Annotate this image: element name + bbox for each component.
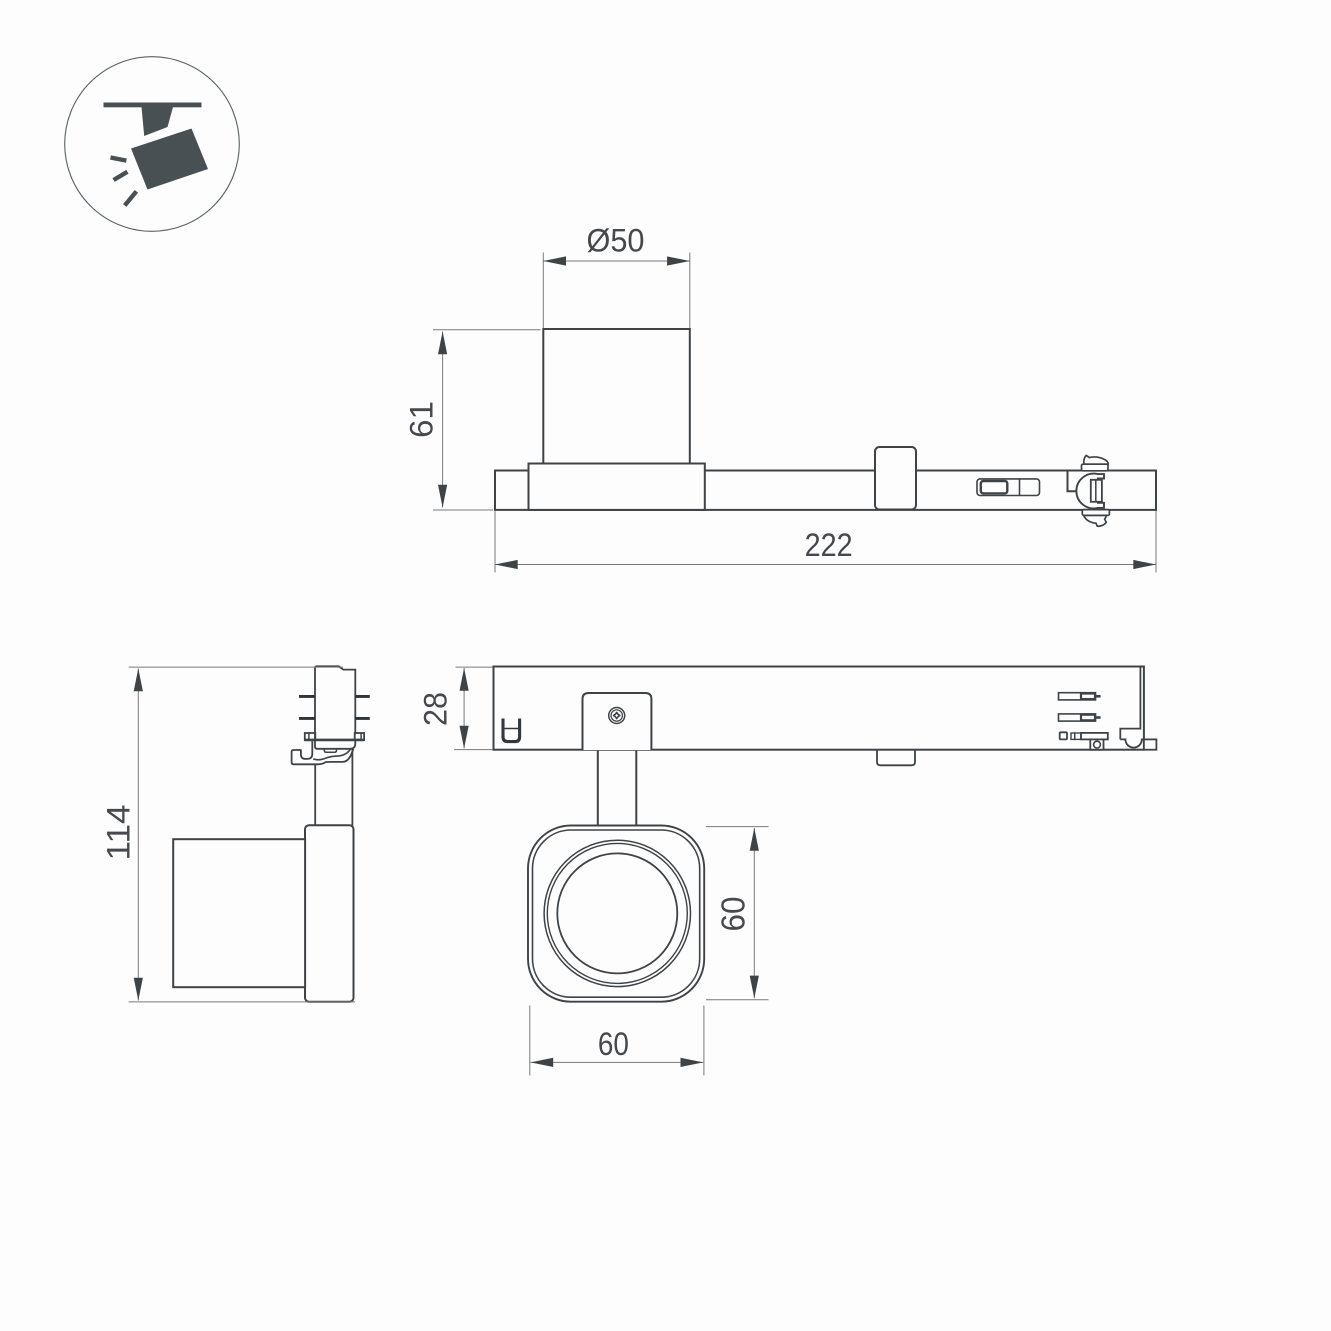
svg-text:222: 222 bbox=[805, 527, 853, 563]
svg-text:Ø50: Ø50 bbox=[587, 222, 645, 258]
svg-text:114: 114 bbox=[100, 805, 136, 861]
svg-text:28: 28 bbox=[418, 692, 454, 726]
svg-text:60: 60 bbox=[598, 1026, 629, 1062]
svg-text:60: 60 bbox=[715, 897, 752, 932]
svg-text:61: 61 bbox=[403, 401, 439, 438]
